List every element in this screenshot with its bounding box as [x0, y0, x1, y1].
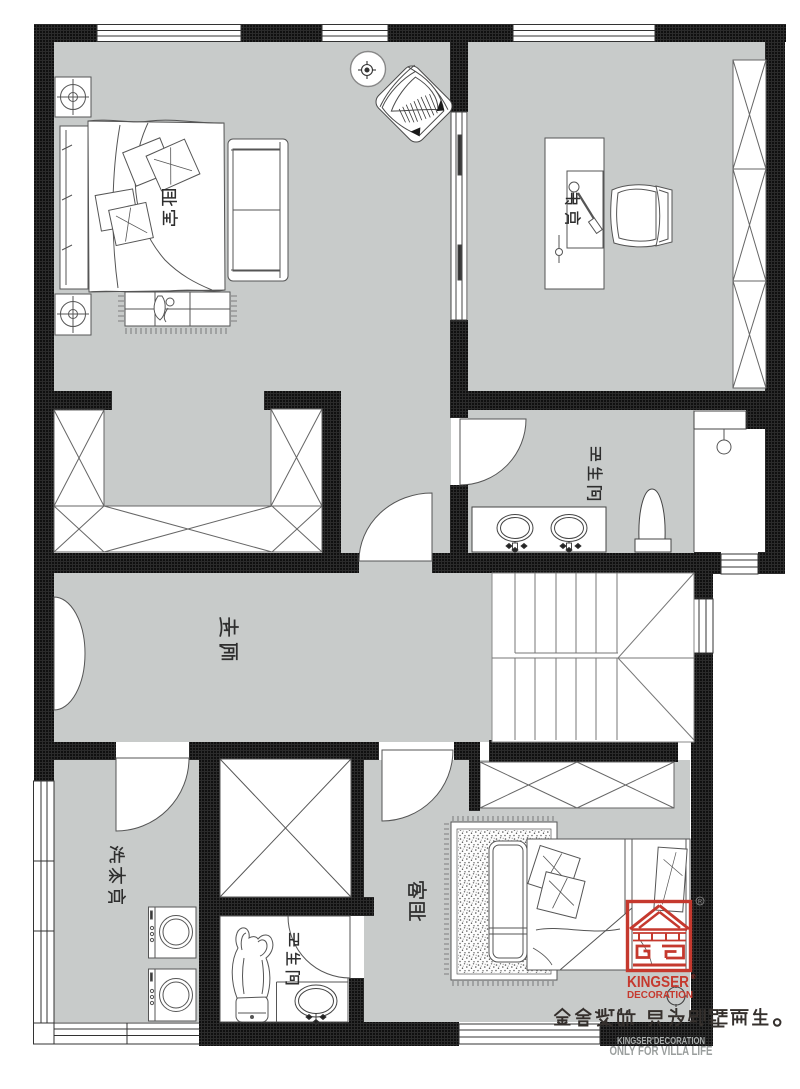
svg-text:DECORATION: DECORATION — [627, 989, 693, 1001]
svg-text:ONLY FOR VILLA LIFE: ONLY FOR VILLA LIFE — [610, 1044, 713, 1058]
svg-text:R: R — [698, 900, 703, 906]
svg-text:®: ® — [691, 974, 696, 981]
